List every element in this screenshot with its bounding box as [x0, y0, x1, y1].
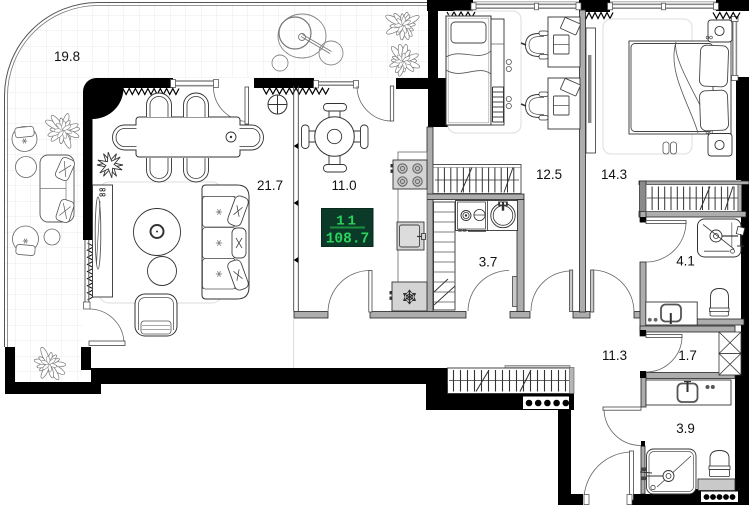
svg-text:11.0: 11.0: [331, 178, 356, 193]
svg-text:19.8: 19.8: [54, 49, 80, 64]
svg-text:11.3: 11.3: [602, 348, 627, 363]
svg-text:108.7: 108.7: [326, 232, 370, 248]
svg-text:14.3: 14.3: [601, 167, 627, 182]
svg-text:3.9: 3.9: [676, 421, 695, 436]
svg-text:4.1: 4.1: [676, 254, 695, 269]
svg-text:21.7: 21.7: [257, 178, 283, 193]
svg-text:1.7: 1.7: [678, 348, 697, 363]
svg-text:12.5: 12.5: [536, 167, 562, 182]
svg-text:3.7: 3.7: [479, 255, 498, 270]
